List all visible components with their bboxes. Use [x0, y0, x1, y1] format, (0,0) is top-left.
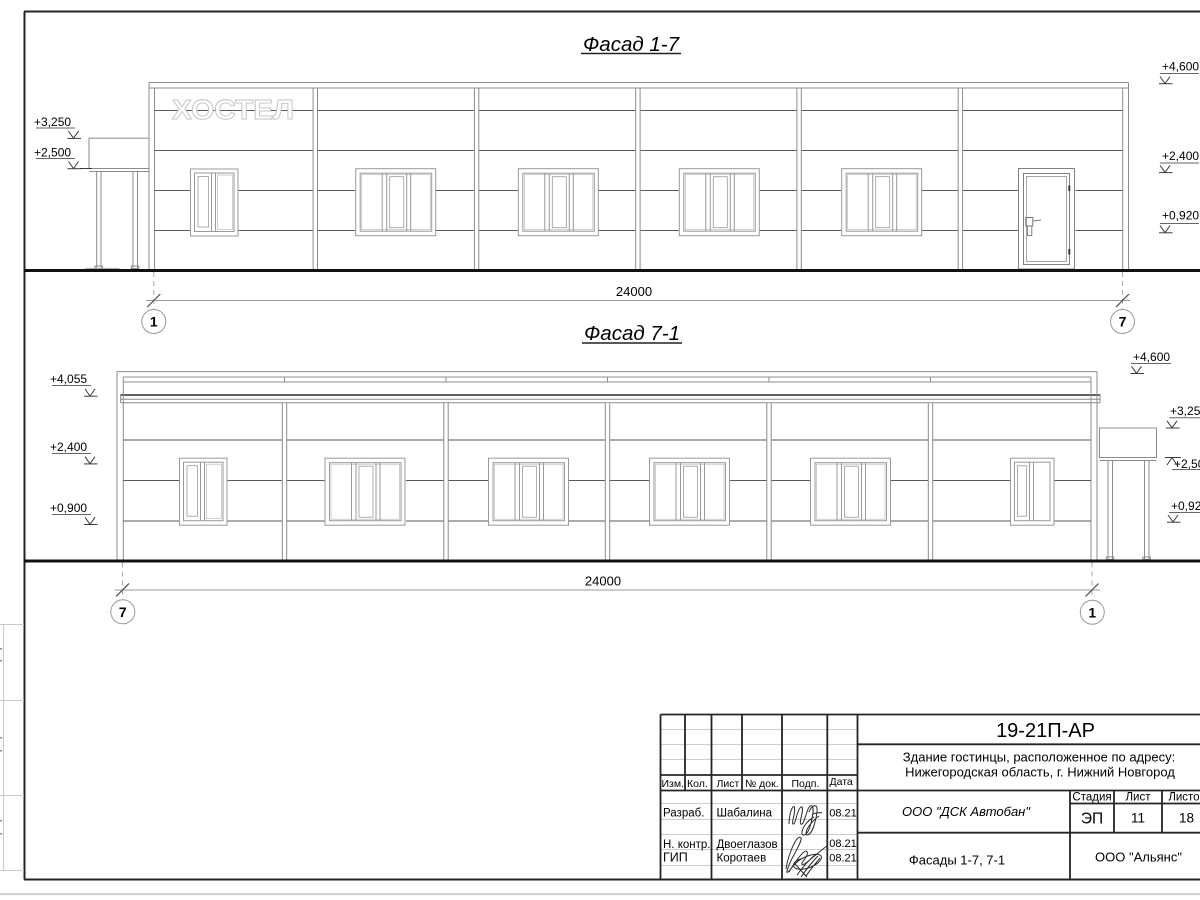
- svg-text:ГИП: ГИП: [663, 851, 688, 865]
- svg-text:+4,055: +4,055: [50, 372, 87, 386]
- svg-text:18: 18: [1179, 811, 1194, 826]
- svg-text:24000: 24000: [585, 574, 621, 589]
- svg-text:Здание гостинцы, расположенное: Здание гостинцы, расположенное по адресу…: [903, 750, 1175, 765]
- svg-text:ООО "ДСК Автобан": ООО "ДСК Автобан": [902, 804, 1031, 819]
- svg-text:Двоеглазов: Двоеглазов: [717, 839, 778, 851]
- svg-text:+2,400: +2,400: [50, 440, 87, 454]
- svg-text:ЭП: ЭП: [1081, 811, 1103, 828]
- svg-text:1: 1: [150, 314, 158, 330]
- svg-text:Кол.: Кол.: [687, 778, 708, 790]
- svg-text:Нижегородская область, г. Нижн: Нижегородская область, г. Нижний Новгоро…: [905, 764, 1175, 779]
- svg-text:Стадия: Стадия: [1072, 792, 1111, 804]
- svg-text:+3,250: +3,250: [1170, 404, 1200, 418]
- svg-text:1: 1: [1088, 604, 1096, 620]
- svg-text:7: 7: [119, 604, 127, 620]
- svg-text:Разраб.: Разраб.: [663, 808, 704, 820]
- svg-text:08.21: 08.21: [829, 838, 857, 850]
- svg-text:№ док.: № док.: [745, 778, 779, 790]
- svg-text:Фасад 7-1: Фасад 7-1: [584, 322, 680, 345]
- svg-text:Лист: Лист: [1126, 792, 1152, 804]
- svg-text:Подп.: Подп.: [792, 778, 820, 790]
- svg-text:Шабалина: Шабалина: [717, 808, 773, 820]
- svg-text:ООО "Альянс": ООО "Альянс": [1095, 850, 1182, 865]
- svg-text:24000: 24000: [616, 284, 652, 299]
- svg-text:+2,500: +2,500: [34, 146, 71, 160]
- svg-text:+4,600: +4,600: [1162, 60, 1199, 74]
- svg-text:+0,920: +0,920: [1171, 499, 1200, 513]
- svg-text:11: 11: [1131, 811, 1145, 826]
- svg-text:+0,900: +0,900: [50, 501, 87, 515]
- svg-text:Дата: Дата: [830, 776, 853, 788]
- svg-text:Коротаев: Коротаев: [717, 853, 767, 865]
- svg-text:+3,250: +3,250: [34, 115, 71, 129]
- svg-text:Изм.: Изм.: [662, 778, 685, 790]
- svg-text:19-21П-АР: 19-21П-АР: [996, 720, 1095, 742]
- svg-text:+2,400: +2,400: [1162, 149, 1199, 163]
- svg-text:Фасады 1-7, 7-1: Фасады 1-7, 7-1: [909, 853, 1005, 868]
- svg-text:Листов: Листов: [1168, 792, 1200, 804]
- svg-text:Лист: Лист: [717, 778, 740, 790]
- svg-text:Н. контр.: Н. контр.: [663, 839, 710, 851]
- svg-text:ХОСТЕЛ: ХОСТЕЛ: [172, 94, 294, 125]
- svg-text:Фасад 1-7: Фасад 1-7: [583, 33, 681, 56]
- svg-text:+2,500: +2,500: [1174, 457, 1200, 471]
- svg-text:+0,920: +0,920: [1162, 209, 1199, 223]
- svg-text:08.21: 08.21: [829, 853, 857, 865]
- svg-text:08.21: 08.21: [829, 808, 857, 820]
- svg-text:7: 7: [1119, 314, 1127, 330]
- svg-text:+4,600: +4,600: [1133, 350, 1170, 364]
